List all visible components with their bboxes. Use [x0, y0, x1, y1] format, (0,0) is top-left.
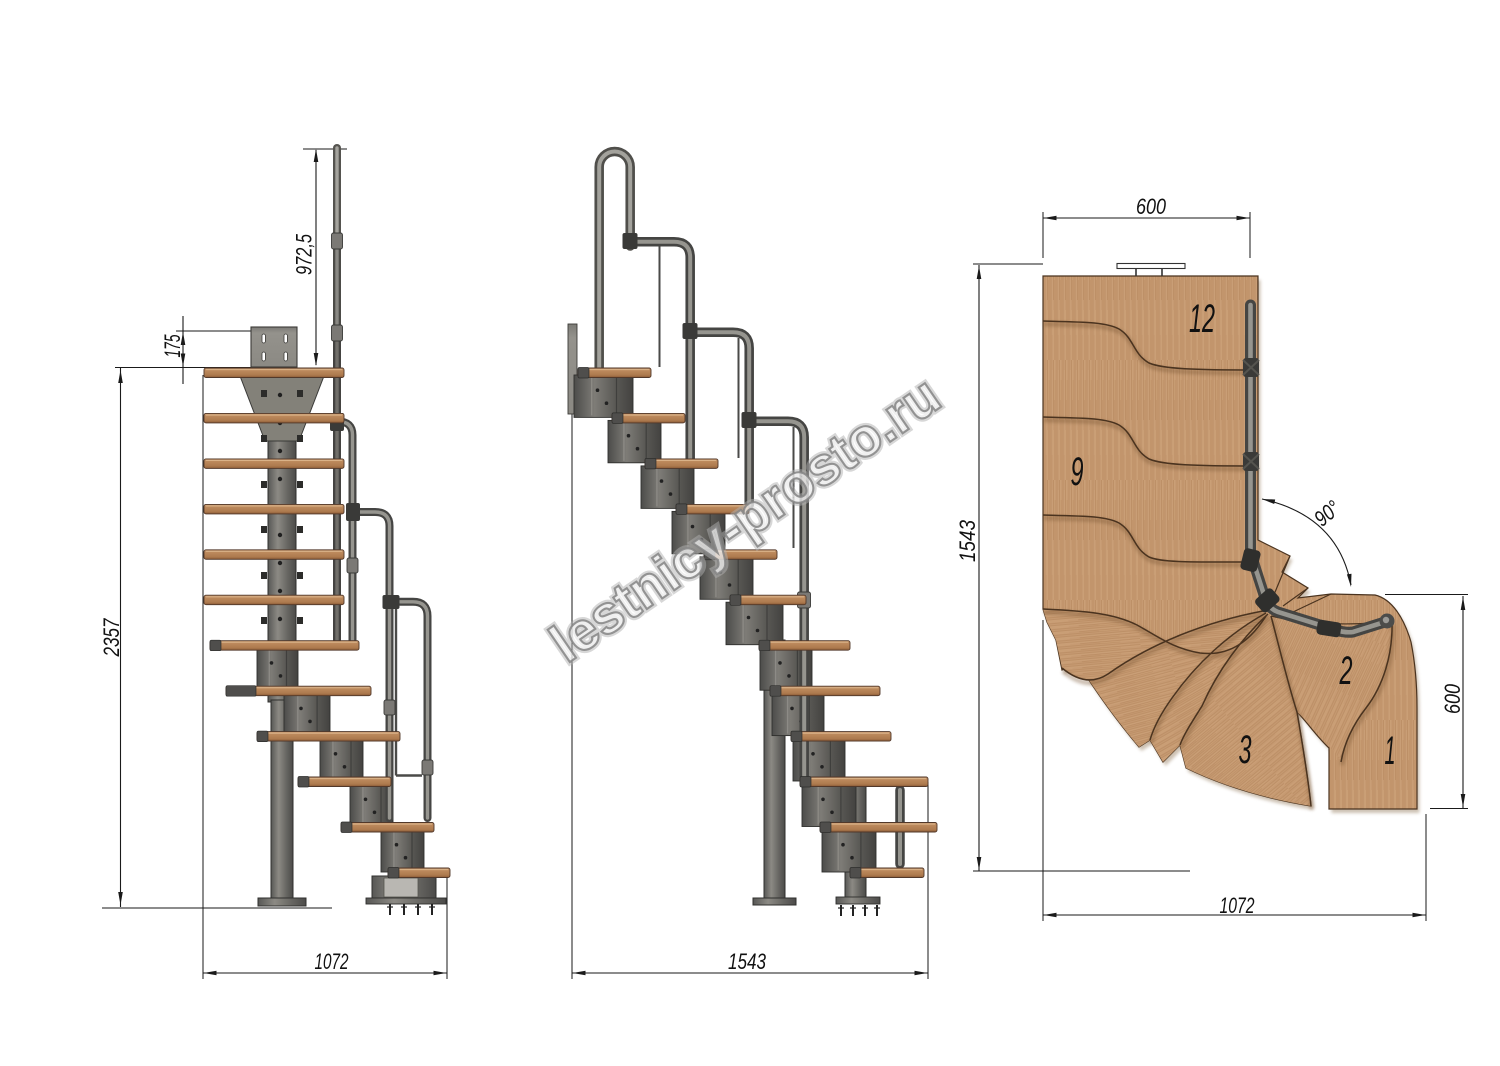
svg-text:972,5: 972,5	[292, 233, 317, 275]
svg-text:1543: 1543	[955, 519, 980, 562]
svg-text:175: 175	[160, 334, 185, 357]
svg-text:3: 3	[1239, 728, 1252, 772]
svg-text:2357: 2357	[99, 618, 124, 657]
svg-text:600: 600	[1136, 194, 1167, 219]
svg-text:1: 1	[1385, 729, 1396, 773]
svg-text:2: 2	[1339, 649, 1353, 693]
svg-text:600: 600	[1440, 683, 1465, 714]
svg-text:1072: 1072	[1220, 893, 1255, 918]
svg-text:12: 12	[1189, 297, 1215, 341]
svg-text:1543: 1543	[728, 949, 767, 974]
svg-text:1072: 1072	[315, 949, 349, 974]
svg-text:9: 9	[1071, 450, 1084, 494]
